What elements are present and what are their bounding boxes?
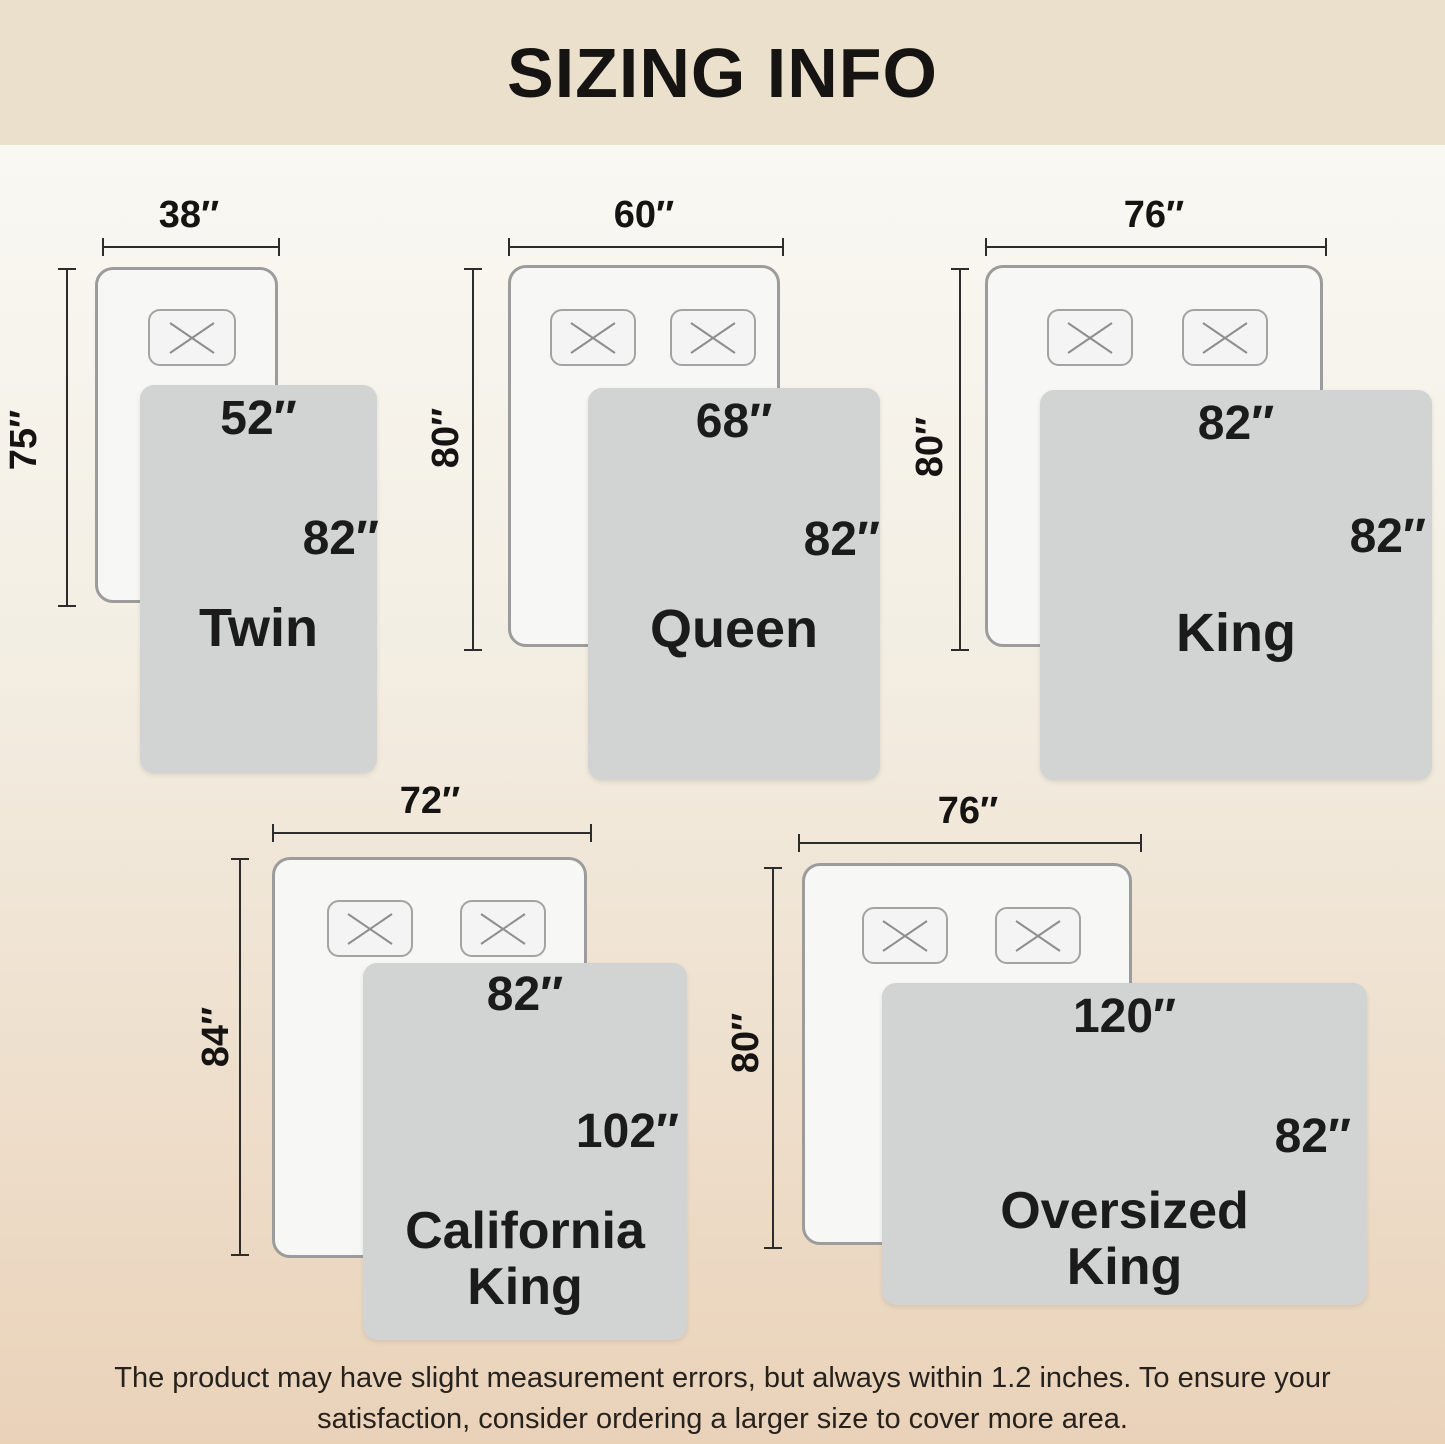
pillow-icon — [1047, 309, 1133, 366]
width-dimension-line — [102, 238, 280, 256]
size-name-label: Twin — [140, 599, 377, 657]
bed-width-label: 60″ — [508, 194, 780, 237]
width-dimension-line — [508, 238, 784, 256]
pillow-cross-icon — [561, 318, 625, 358]
blanket-width-label: 120″ — [882, 989, 1367, 1044]
pillow-cross-icon — [1058, 318, 1122, 358]
blanket-overlay: 82″ 102″ CaliforniaKing — [363, 963, 687, 1340]
blanket-overlay: 68″ 82″ Queen — [588, 388, 880, 780]
header-band: SIZING INFO — [0, 0, 1445, 145]
blanket-width-label: 82″ — [1040, 396, 1432, 451]
pillow-icon — [148, 309, 236, 366]
pillow-cross-icon — [338, 909, 402, 949]
blanket-overlay: 82″ 82″ King — [1040, 390, 1432, 780]
pillow-icon — [550, 309, 636, 366]
measurement-disclaimer: The product may have slight measurement … — [0, 1358, 1445, 1439]
bed-length-label: 80″ — [723, 988, 769, 1098]
sizing-infographic: SIZING INFO 38″ 75″ 52″ 82″ Twin 60″ 80″ — [0, 0, 1445, 1444]
size-name-label: Queen — [588, 600, 880, 658]
blanket-width-label: 82″ — [363, 967, 687, 1022]
bed-width-label: 72″ — [272, 780, 588, 823]
bed-width-label: 76″ — [798, 790, 1138, 833]
pillow-cross-icon — [1193, 318, 1257, 358]
bed-length-label: 75″ — [1, 385, 47, 495]
disclaimer-line-1: The product may have slight measurement … — [0, 1358, 1445, 1399]
pillow-icon — [327, 900, 413, 957]
size-name-label: OversizedKing — [882, 1183, 1367, 1295]
blanket-length-label: 82″ — [303, 511, 379, 566]
pillow-cross-icon — [1006, 916, 1070, 956]
size-name-label: King — [1040, 604, 1432, 662]
page-title: SIZING INFO — [507, 33, 938, 113]
bed-width-label: 76″ — [985, 194, 1323, 237]
pillow-cross-icon — [681, 318, 745, 358]
bed-length-label: 80″ — [907, 392, 953, 502]
size-name-label: CaliforniaKing — [363, 1203, 687, 1315]
bed-width-label: 38″ — [102, 194, 276, 237]
disclaimer-line-2: satisfaction, consider ordering a larger… — [0, 1399, 1445, 1440]
blanket-length-label: 82″ — [1275, 1109, 1351, 1164]
pillow-icon — [995, 907, 1081, 964]
pillow-icon — [670, 309, 756, 366]
blanket-overlay: 120″ 82″ OversizedKing — [882, 983, 1367, 1305]
bed-length-label: 84″ — [193, 982, 239, 1092]
blanket-length-label: 82″ — [1350, 509, 1426, 564]
blanket-width-label: 68″ — [588, 394, 880, 449]
length-dimension-line — [951, 268, 969, 651]
pillow-cross-icon — [471, 909, 535, 949]
pillow-icon — [1182, 309, 1268, 366]
width-dimension-line — [985, 238, 1327, 256]
length-dimension-line — [58, 268, 76, 607]
bed-length-label: 80″ — [423, 383, 469, 493]
pillow-cross-icon — [160, 318, 224, 358]
width-dimension-line — [272, 824, 592, 842]
blanket-length-label: 102″ — [576, 1104, 679, 1159]
blanket-length-label: 82″ — [804, 512, 880, 567]
pillow-icon — [862, 907, 948, 964]
blanket-width-label: 52″ — [140, 391, 377, 446]
blanket-overlay: 52″ 82″ Twin — [140, 385, 377, 773]
pillow-cross-icon — [873, 916, 937, 956]
pillow-icon — [460, 900, 546, 957]
width-dimension-line — [798, 834, 1142, 852]
